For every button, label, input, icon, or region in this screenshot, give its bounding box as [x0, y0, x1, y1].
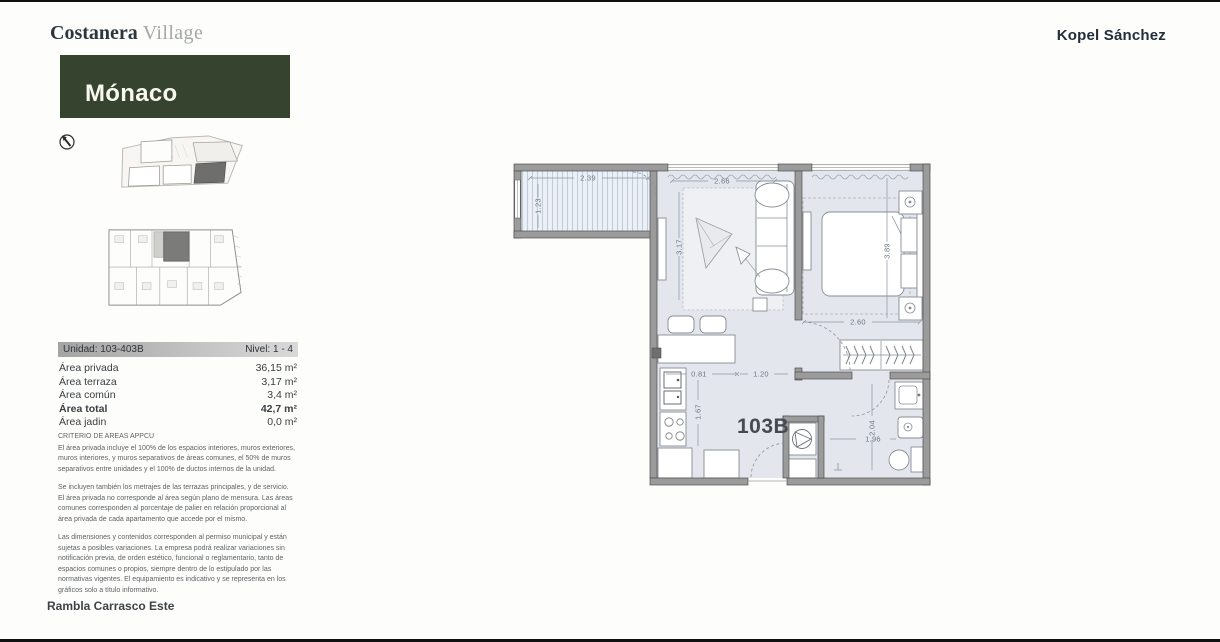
building-a: [141, 140, 172, 163]
dim-kitchen-depth: 1.67: [694, 404, 703, 420]
dim-kitchen-b: 1.20: [753, 370, 769, 379]
nightstand: [899, 191, 922, 214]
developer-name: Kopel Sánchez: [1000, 27, 1166, 44]
nightstand: [899, 297, 922, 320]
bidet: [898, 417, 923, 438]
dim-terrace-width: 2.39: [580, 174, 596, 183]
base-cabinet: [658, 448, 692, 478]
brand-secondary: Village: [143, 22, 203, 44]
plan-sheet: CostaneraVillage Kopel Sánchez Mónaco: [0, 0, 1220, 642]
top-border: [0, 0, 1220, 2]
building-d-outline: [193, 142, 237, 162]
area-row-jardin: Área jadin0,0 m²: [58, 416, 298, 430]
north-arrow-icon: [58, 133, 76, 151]
sofa: [755, 181, 794, 295]
area-row-total: Área total42,7 m²: [58, 403, 298, 417]
building-b: [129, 166, 160, 186]
brand-primary: Costanera: [50, 22, 138, 44]
site-plan-thumbnail: [115, 133, 250, 191]
fridge: [704, 450, 739, 478]
unit-info-table: Unidad: 103-403B Nivel: 1 - 4 Área priva…: [58, 342, 298, 430]
building-c: [163, 165, 191, 184]
legal-paragraph-3: Las dimensiones y contenidos corresponde…: [58, 533, 296, 596]
unit-number: Unidad: 103-403B: [63, 344, 144, 355]
wardrobe: [840, 340, 923, 370]
dim-bath-width: 1.96: [865, 435, 881, 444]
unit-table-header: Unidad: 103-403B Nivel: 1 - 4: [58, 342, 298, 357]
legal-heading: CRITERIO DE AREAS APPCU: [58, 432, 296, 443]
washbasin: [895, 382, 923, 409]
dim-bedroom-width: 2.60: [850, 318, 866, 327]
legal-disclaimer: CRITERIO DE AREAS APPCU El área privada …: [58, 432, 296, 604]
area-row-comun: Área común3,4 m²: [58, 389, 298, 403]
radiator: [658, 218, 666, 280]
stove: [660, 412, 686, 446]
project-name-banner: Mónaco: [60, 55, 290, 118]
side-table: [753, 298, 767, 311]
floor-plan: 2.39 1.23 2.66 3.17 3.89 2.60 0.81 1.20 …: [500, 150, 950, 500]
unit-highlight: [164, 232, 189, 261]
stool: [668, 316, 694, 333]
dim-kitchen-a: 0.81: [691, 370, 707, 379]
pillow: [901, 254, 917, 288]
kitchen-counter: [658, 335, 735, 363]
pillow: [901, 218, 917, 252]
floor-plate-thumbnail: [103, 224, 245, 312]
brand-logo: CostaneraVillage: [50, 22, 203, 45]
shower: [788, 423, 816, 455]
location-label: Rambla Carrasco Este: [47, 599, 174, 613]
area-row-privada: Área privada36,15 m²: [58, 362, 298, 376]
radiator: [803, 212, 811, 270]
building-monaco-highlight: [194, 162, 226, 183]
area-row-terraza: Área terraza3,17 m²: [58, 376, 298, 390]
unit-level: Nivel: 1 - 4: [245, 344, 293, 355]
duct: [652, 348, 661, 358]
legal-paragraph-2: Se incluyen también los metrajes de las …: [58, 483, 296, 525]
dim-living-depth: 3.17: [675, 239, 684, 255]
laundry-cabinet: [788, 459, 816, 478]
dim-terrace-depth: 1.23: [534, 198, 543, 214]
dim-bedroom-depth: 3.89: [883, 243, 892, 259]
stool: [700, 316, 726, 333]
unit-label: 103B: [737, 415, 789, 438]
dim-living-width: 2.66: [714, 177, 730, 186]
legal-paragraph-1: El área privada incluye el 100% de los e…: [58, 444, 296, 476]
project-name: Mónaco: [60, 80, 177, 118]
floor-plan-drawing: 2.39 1.23 2.66 3.17 3.89 2.60 0.81 1.20 …: [500, 150, 950, 495]
